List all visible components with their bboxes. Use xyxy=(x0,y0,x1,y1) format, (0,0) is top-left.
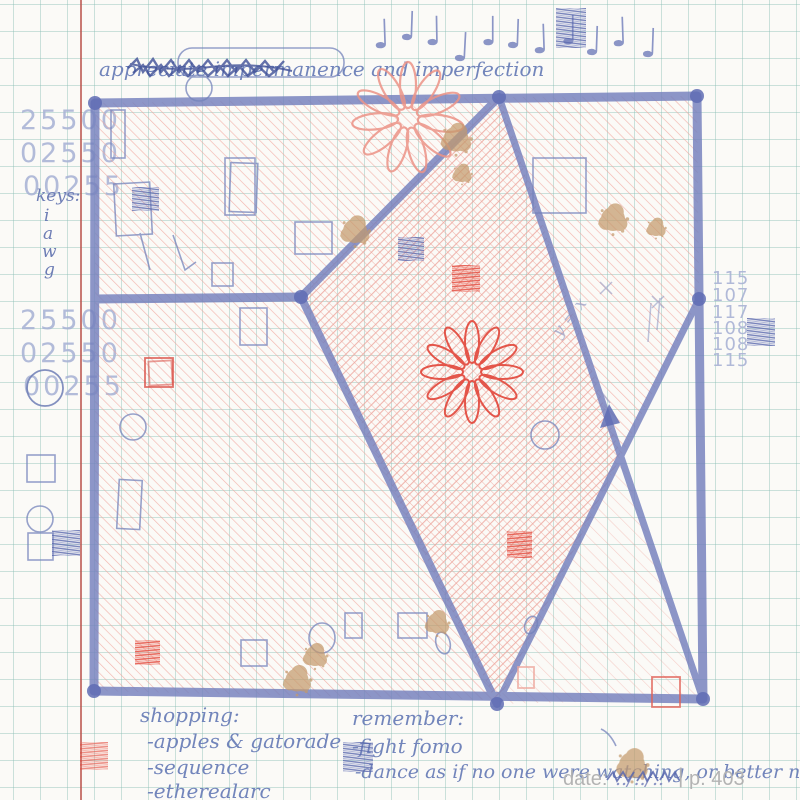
diagonal-line-b xyxy=(497,299,699,704)
hatch-region-kite xyxy=(301,97,621,704)
hatched-square-red xyxy=(507,531,532,558)
hatched-square-blue xyxy=(132,187,159,211)
sketch-square-pink xyxy=(518,667,534,688)
sketch-square xyxy=(241,640,267,666)
margin-number: 25500 xyxy=(20,305,121,336)
shopping-item: -etherealarc xyxy=(147,779,271,800)
sketch-circle xyxy=(309,623,335,653)
coffee-stain xyxy=(283,665,313,696)
notebook-page: appreciate impermanence and imperfection… xyxy=(0,0,800,800)
page-number: p. 403 xyxy=(689,768,745,791)
sketch-square xyxy=(398,613,427,638)
hatched-square-red xyxy=(452,265,480,292)
keys-label: keys: xyxy=(36,186,80,206)
date-value: ../../.. xyxy=(615,768,664,790)
quarter-note-icon: ♩ xyxy=(609,13,629,54)
key-item: i xyxy=(44,206,49,226)
sketch-square xyxy=(225,158,255,215)
hatched-square-red xyxy=(135,640,160,665)
remember-title: remember: xyxy=(352,706,464,730)
quarter-note-icon: ♩ xyxy=(398,7,418,48)
sketch-circle xyxy=(27,506,53,532)
sketch-square xyxy=(533,158,586,213)
hatch-region-bottom-left xyxy=(94,297,497,700)
hatch-region-top-right xyxy=(499,96,699,456)
pen-marks xyxy=(600,282,664,403)
quarter-note-icon: ♩ xyxy=(480,12,499,52)
coffee-stain xyxy=(441,123,473,157)
sketch-loop xyxy=(522,614,539,635)
date-label: date: xyxy=(563,768,607,791)
coffee-stain xyxy=(425,610,451,637)
hatched-square-blue xyxy=(52,530,80,556)
sketch-square xyxy=(212,263,233,286)
divider-line xyxy=(95,297,301,299)
coffee-stain xyxy=(598,203,629,236)
outer-square-sketch xyxy=(94,96,703,699)
hatch-region-bottom-right xyxy=(497,456,703,704)
quarter-note-icon: ♩ xyxy=(451,28,472,69)
main-sketch-lines xyxy=(94,96,703,704)
margin-number: 00255 xyxy=(23,371,124,402)
sketch-square xyxy=(229,163,258,213)
coffee-stain xyxy=(646,218,667,240)
key-item: w xyxy=(42,242,57,262)
sketch-annotation: y = x xyxy=(548,294,592,342)
flower-doodle-center xyxy=(421,321,523,423)
sketch-circle xyxy=(120,414,146,440)
arrow-up-icon xyxy=(600,404,620,428)
margin-number: 25500 xyxy=(20,105,121,136)
sketch-square xyxy=(27,455,55,482)
kite-left-edges xyxy=(301,97,499,704)
sketch-square xyxy=(295,222,332,254)
key-item: g xyxy=(44,260,55,280)
page-title: appreciate impermanence and imperfection xyxy=(99,57,544,81)
quarter-note-icon: ♩ xyxy=(371,15,391,56)
diagonal-line-a xyxy=(499,97,703,699)
coffee-stain xyxy=(452,164,473,186)
key-item: a xyxy=(43,224,53,244)
sketch-loop xyxy=(433,631,452,656)
hatched-square-blue xyxy=(747,318,775,346)
quarter-note-icon: ♩ xyxy=(639,24,659,65)
sketch-square xyxy=(345,613,362,638)
hatched-squares xyxy=(52,8,775,772)
sketch-square-red xyxy=(145,358,173,387)
coffee-stain xyxy=(303,643,329,670)
shopping-title: shopping: xyxy=(140,703,240,727)
shopping-item: -apples & gatorade xyxy=(147,729,341,753)
x-mark xyxy=(600,282,612,294)
coffee-stains xyxy=(283,123,667,784)
sketch-square xyxy=(28,533,53,560)
coffee-stain xyxy=(340,215,371,248)
hatched-regions xyxy=(94,96,703,704)
arrow-stem xyxy=(600,390,610,403)
sketch-square-red xyxy=(148,360,172,385)
x-mark xyxy=(652,296,664,308)
vertex-nodes xyxy=(87,89,710,711)
remember-item: -fight fomo xyxy=(352,734,463,758)
margin-number: 115 xyxy=(712,350,749,371)
quarter-note-icon: ♩ xyxy=(504,15,524,56)
sketch-square xyxy=(240,308,267,345)
sketch-squares-red xyxy=(145,358,680,707)
quarter-note-icon: ♩ xyxy=(424,12,444,52)
tick-marks xyxy=(648,298,660,342)
footer-separator: | xyxy=(678,765,683,789)
hatch-region-top-left xyxy=(95,97,499,299)
margin-number: 02550 xyxy=(20,338,121,369)
hatched-square-red xyxy=(80,742,108,770)
stray-stroke xyxy=(140,233,196,270)
hatched-square-blue xyxy=(398,237,424,261)
sketch-square xyxy=(117,479,143,529)
sketch-curve xyxy=(601,729,616,746)
quarter-note-icon: ♩ xyxy=(583,22,603,63)
sketch-square-red xyxy=(652,677,680,707)
quarter-note-icon: ♩ xyxy=(560,11,579,51)
shopping-item: -sequence xyxy=(147,755,249,779)
sketch-circle xyxy=(531,421,559,449)
quarter-note-icon: ♩ xyxy=(530,20,550,61)
margin-number: 02550 xyxy=(20,138,121,169)
